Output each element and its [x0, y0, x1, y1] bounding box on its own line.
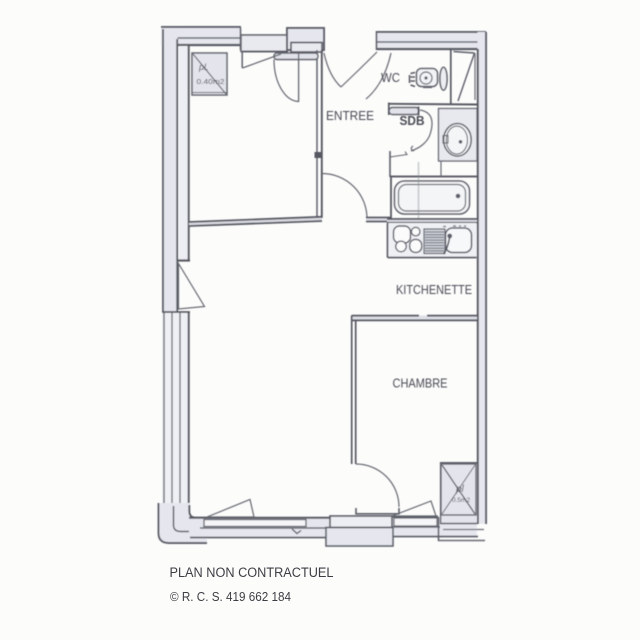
svg-text:pl.: pl. [198, 62, 209, 72]
svg-text:CHAMBRE: CHAMBRE [393, 376, 448, 391]
svg-text:0.5m2: 0.5m2 [452, 497, 470, 504]
svg-text:ENTREE: ENTREE [326, 108, 374, 123]
svg-text:PLAN NON CONTRACTUEL: PLAN NON CONTRACTUEL [170, 565, 334, 580]
svg-text:SDB: SDB [400, 113, 425, 128]
svg-text:© R. C. S. 419 662 184: © R. C. S. 419 662 184 [170, 589, 291, 604]
svg-text:WC: WC [381, 70, 400, 85]
svg-text:pl: pl [455, 484, 465, 495]
svg-text:0.40m2: 0.40m2 [197, 77, 225, 86]
svg-text:KITCHENETTE: KITCHENETTE [396, 283, 472, 297]
